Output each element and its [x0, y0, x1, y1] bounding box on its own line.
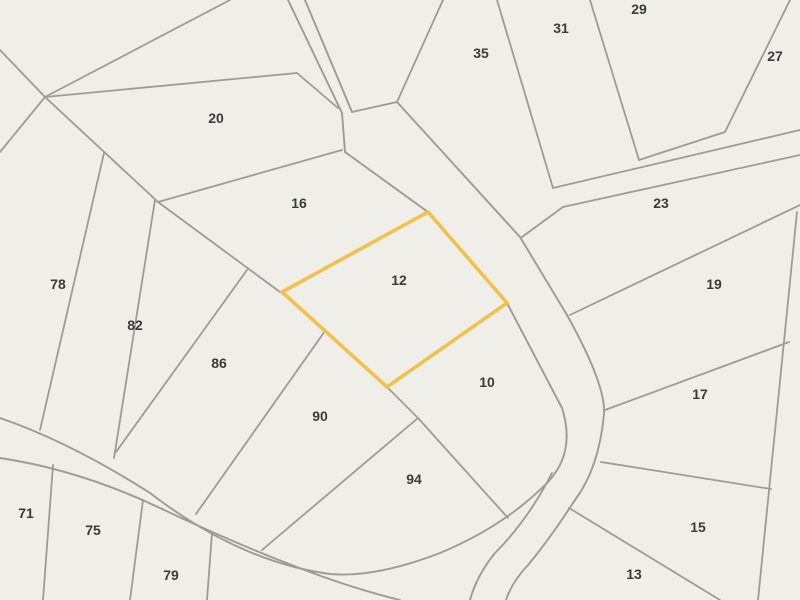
- parcel-label-16: 16: [291, 195, 307, 211]
- parcel-label-20: 20: [208, 110, 224, 126]
- parcel-label-78: 78: [50, 276, 66, 292]
- parcel-map[interactable]: 20 35 31 29 27 16 23 12 19 78 82 86 90 1…: [0, 0, 800, 600]
- parcel-label-15: 15: [690, 519, 706, 535]
- parcel-label-75: 75: [85, 522, 101, 538]
- parcel-label-82: 82: [127, 317, 143, 333]
- parcel-label-12: 12: [391, 272, 407, 288]
- parcel-label-79: 79: [163, 567, 179, 583]
- parcel-label-31: 31: [553, 20, 569, 36]
- parcel-label-23: 23: [653, 195, 669, 211]
- parcel-label-29: 29: [631, 1, 647, 17]
- parcel-label-71: 71: [18, 505, 34, 521]
- parcel-label-10: 10: [479, 374, 495, 390]
- parcel-label-35: 35: [473, 45, 489, 61]
- parcel-label-27: 27: [767, 48, 783, 64]
- parcel-label-19: 19: [706, 276, 722, 292]
- parcel-map-canvas[interactable]: 20 35 31 29 27 16 23 12 19 78 82 86 90 1…: [0, 0, 800, 600]
- parcel-label-17: 17: [692, 386, 708, 402]
- parcel-label-86: 86: [211, 355, 227, 371]
- parcel-label-13: 13: [626, 566, 642, 582]
- parcel-label-90: 90: [312, 408, 328, 424]
- parcel-label-94: 94: [406, 471, 422, 487]
